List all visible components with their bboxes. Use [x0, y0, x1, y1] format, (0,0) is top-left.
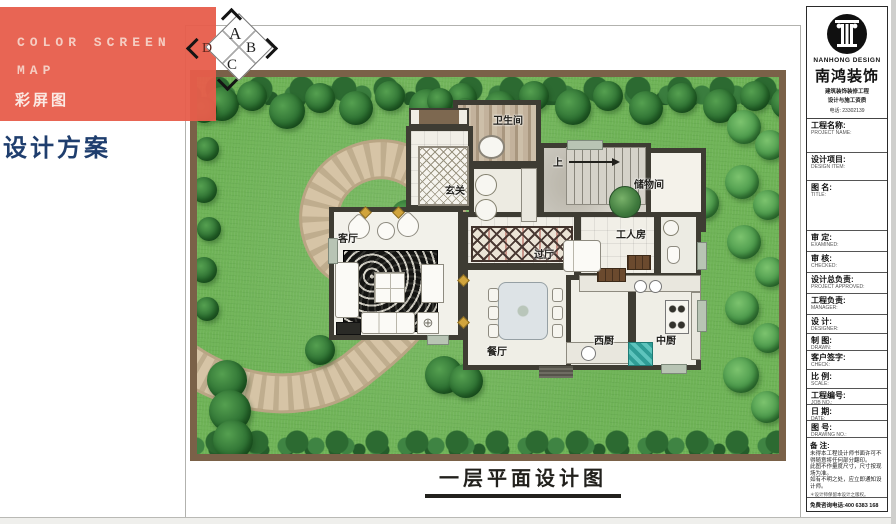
hotline: 免费咨询电话:400 6383 168 [807, 498, 887, 511]
tree-icon [725, 291, 759, 325]
titleblock-field-row: 审 核:CHECKED: [807, 252, 887, 273]
sofa [335, 262, 359, 318]
field-label-cn: 审 定: [811, 233, 883, 242]
washbasin [663, 220, 679, 236]
label-west-kitchen: 西厨 [594, 332, 614, 347]
site-plan-garden: ⊕ [190, 70, 786, 461]
titleblock-field-row: 工程名称:PROJECT NAME: [807, 119, 887, 153]
note-line: 如有不明之处，应立即通知设计师。 [810, 477, 884, 490]
note-line: 未得本工程设计师书面许可不得随意将任何部分翻印。 [810, 451, 884, 464]
page: ⊕ [0, 0, 896, 524]
titleblock-field-row: 日 期:DATE: [807, 405, 887, 421]
titleblock-field-row: 设计项目:DESIGN ITEM: [807, 153, 887, 181]
window-sill [567, 140, 603, 150]
tree-icon [339, 91, 373, 125]
color-screen-panel: COLOR SCREEN MAP 彩屏图 [0, 7, 216, 121]
dining-chair [552, 306, 563, 320]
tree-icon [753, 190, 783, 220]
tree-icon [725, 165, 759, 199]
tree-icon [629, 91, 663, 125]
label-worker: 工人房 [616, 226, 646, 241]
titleblock-field-row: 审 定:EXAMINED: [807, 231, 887, 252]
column-logo-icon [826, 13, 868, 55]
bottom-hedge [197, 419, 779, 455]
foyer-rug [418, 146, 469, 206]
field-label-cn: 工程编号: [811, 391, 883, 400]
titleblock-field-row: 客户签字:CHECK: [807, 351, 887, 370]
entrance-porch [409, 108, 469, 126]
titleblock-field-row: 工程编号:JOB NO.: [807, 389, 887, 405]
dining-chair [488, 306, 499, 320]
titleblock-field-row: 设计总负责:PROJECT APPROVED: [807, 273, 887, 294]
field-label-cn: 图 名: [811, 183, 883, 192]
titleblock-field-row: 比 例:SCALE: [807, 370, 887, 389]
titleblock-field-row: 图 名:TITLE: [807, 181, 887, 231]
titleblock-notes: 备 注: 未得本工程设计师书面许可不得随意将任何部分翻印。此图不作量度尺寸，尺寸… [807, 438, 887, 498]
wardrobe [627, 255, 651, 270]
tree-icon [195, 297, 219, 321]
note-line: 此图不作量度尺寸，尺寸按现场为准。 [810, 464, 884, 477]
tree-icon [191, 177, 217, 203]
tree-icon [667, 83, 697, 113]
tree-icon [195, 137, 219, 161]
field-label-en: CHECK: [811, 362, 883, 368]
field-label-cn: 客户签字: [811, 353, 883, 362]
washbasin [475, 199, 497, 221]
field-label-cn: 图 号: [811, 423, 883, 432]
window-sill [661, 364, 687, 374]
titleblock-field-row: 制 图:DRAWN: [807, 334, 887, 351]
label-living: 客厅 [338, 230, 358, 245]
field-label-en: CHECKED: [811, 263, 883, 269]
tree-icon [555, 89, 591, 125]
field-label-en: TITLE: [811, 192, 883, 198]
titleblock-field-row: 图 号:DRAWING NO.: [807, 421, 887, 438]
washbasin [475, 174, 497, 196]
titleblock-field-row: 设 计:DESIGNER: [807, 315, 887, 334]
field-label-cn: 审 核: [811, 254, 883, 263]
tree-icon [593, 81, 623, 111]
entrance-steps [539, 366, 573, 378]
titleblock-fields: 工程名称:PROJECT NAME:设计项目:DESIGN ITEM:图 名:T… [807, 119, 887, 438]
bottom-edge-strip [0, 517, 896, 524]
field-label-cn: 工程名称: [811, 121, 883, 130]
field-label-en: PROJECT APPROVED: [811, 284, 883, 290]
field-label-cn: 制 图: [811, 336, 883, 345]
stairs-up-arrow [569, 161, 613, 163]
design-scheme-title: 设计方案 [3, 128, 111, 163]
hallway-runner-rug [471, 226, 573, 262]
panel-line1: COLOR SCREEN [17, 35, 171, 50]
compass-letter-b: B [246, 40, 256, 57]
bathroom-basin [478, 135, 505, 159]
panel-line3: 彩屏图 [15, 89, 69, 110]
field-label-cn: 设 计: [811, 317, 883, 326]
field-label-en: EXAMINED: [811, 242, 883, 248]
field-label-cn: 设计项目: [811, 155, 883, 164]
tree-icon [755, 130, 785, 160]
round-side-table [377, 222, 395, 240]
field-label-en: PROJECT NAME: [811, 130, 883, 136]
window-sill [697, 300, 707, 332]
tree-icon [191, 257, 217, 283]
window-sill [328, 238, 338, 264]
tree-icon [375, 81, 405, 111]
corner-unit: ⊕ [417, 312, 439, 334]
kitchen-sink [634, 280, 647, 293]
kitchen-sink [649, 280, 662, 293]
right-edge-strip [891, 0, 896, 524]
title-block: NANHONG DESIGN 南鸿装饰 建筑装饰装修工程 设计与施工资质 电话:… [806, 6, 888, 512]
dining-chair [552, 288, 563, 302]
tree-icon [213, 420, 253, 460]
label-bathroom: 卫生间 [493, 112, 523, 127]
panel-line2: MAP [17, 63, 55, 78]
tree-icon [740, 81, 770, 111]
sofa [361, 312, 415, 334]
worker-bed [563, 240, 601, 272]
company-logo-area: NANHONG DESIGN 南鸿装饰 建筑装饰装修工程 设计与施工资质 电话:… [807, 7, 887, 119]
tree-icon [723, 357, 759, 393]
toilet [667, 246, 680, 264]
dining-table [498, 282, 548, 340]
notes-label: 备 注: [810, 440, 884, 451]
kitchen-sink [581, 346, 596, 361]
field-label-cn: 工程负责: [811, 296, 883, 305]
room-worker-bathroom [656, 212, 701, 278]
tree-icon [305, 83, 335, 113]
brand-cn: 南鸿装饰 [807, 65, 887, 86]
tree-icon [197, 217, 221, 241]
brand-sub2: 设计与施工资质 [807, 96, 887, 104]
stove [665, 300, 689, 334]
label-foyer: 玄关 [445, 182, 465, 197]
side-cabinet [421, 264, 444, 303]
tree-icon [727, 225, 761, 259]
dining-chair [488, 324, 499, 338]
label-hallway: 过厅 [534, 246, 554, 261]
kitchen-mat [628, 342, 653, 366]
field-label-en: DESIGN ITEM: [811, 164, 883, 170]
console-cabinet [597, 268, 626, 282]
brand-tel: 电话: 23302139 [807, 107, 887, 114]
tree-icon [753, 323, 783, 353]
field-label-cn: 比 例: [811, 372, 883, 381]
notes-list: 未得本工程设计师书面许可不得随意将任何部分翻印。此图不作量度尺寸，尺寸按现场为准… [810, 451, 884, 490]
field-label-en: DESIGNER: [811, 326, 883, 332]
tree-icon [269, 93, 305, 129]
titleblock-field-row: 工程负责:MANAGER: [807, 294, 887, 315]
tree-icon [755, 257, 785, 287]
brand-en: NANHONG DESIGN [807, 57, 887, 64]
dining-chair [488, 288, 499, 302]
field-label-en: MANAGER: [811, 305, 883, 311]
tree-icon [237, 81, 267, 111]
window-sill [697, 242, 707, 270]
field-label-cn: 设计总负责: [811, 275, 883, 284]
tree-icon [751, 391, 783, 423]
label-chinese-kitchen: 中厨 [656, 332, 676, 347]
field-label-en: SCALE: [811, 381, 883, 387]
label-storage: 储物间 [634, 176, 664, 191]
label-dining: 餐厅 [487, 343, 507, 358]
dining-chair [552, 324, 563, 338]
window-sill [427, 335, 449, 345]
tv-cabinet [336, 322, 361, 335]
brand-sub1: 建筑装饰装修工程 [807, 87, 887, 95]
drawing-caption: 一层平面设计图 [425, 462, 621, 498]
coffee-table [374, 272, 405, 303]
field-label-cn: 日 期: [811, 407, 883, 416]
label-stairs-up: 上 [553, 154, 563, 169]
bath-counter [521, 168, 537, 222]
